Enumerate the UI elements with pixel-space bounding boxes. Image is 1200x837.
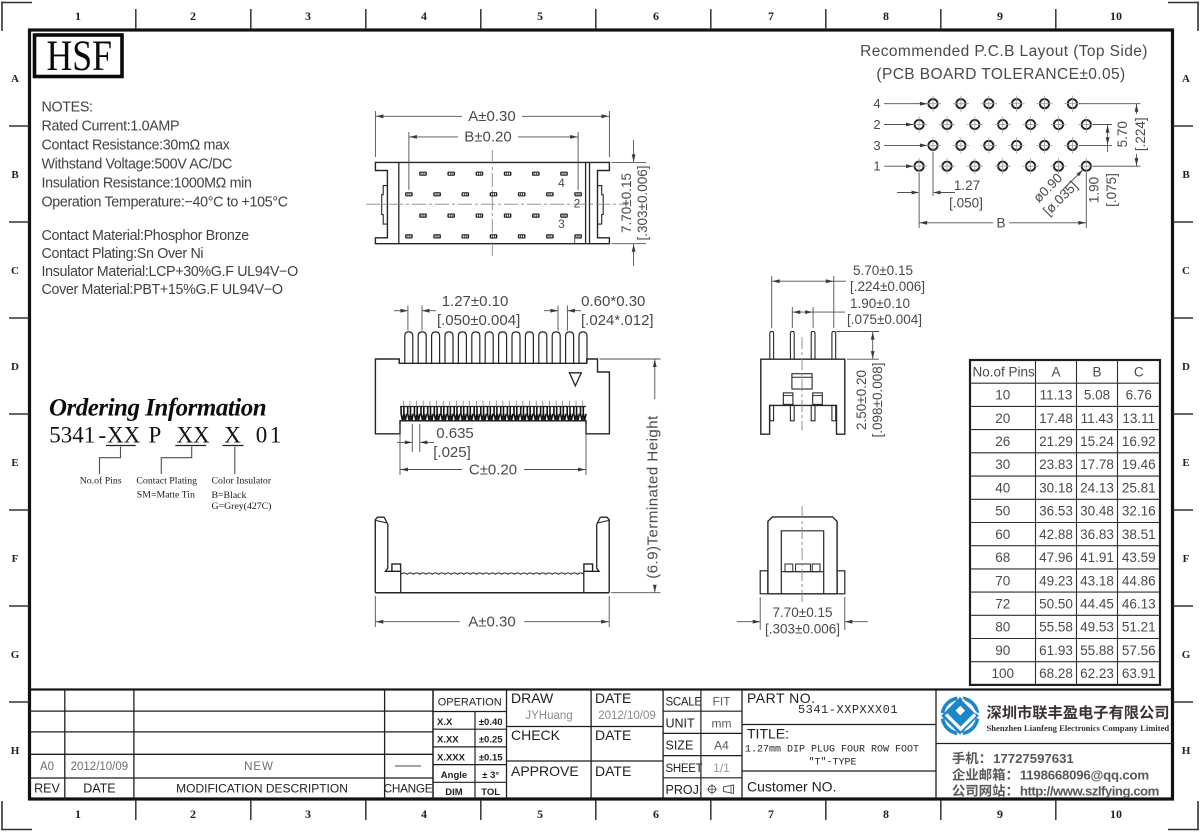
svg-text:62.23: 62.23 <box>1080 666 1114 681</box>
svg-text:10: 10 <box>995 388 1010 403</box>
svg-text:30.48: 30.48 <box>1080 504 1114 519</box>
svg-text:44.86: 44.86 <box>1122 573 1156 588</box>
svg-text:13.11: 13.11 <box>1122 411 1155 426</box>
svg-text:A: A <box>1182 73 1190 85</box>
svg-text:PROJ.: PROJ. <box>666 783 703 797</box>
svg-text:[.224]: [.224] <box>1133 117 1148 151</box>
svg-text:X.X: X.X <box>437 717 453 728</box>
svg-text:51.21: 51.21 <box>1122 620 1156 635</box>
svg-text:36.83: 36.83 <box>1080 527 1114 542</box>
svg-text:63.91: 63.91 <box>1122 666 1156 681</box>
svg-text:6: 6 <box>653 807 659 821</box>
svg-text:43.18: 43.18 <box>1080 573 1114 588</box>
svg-text:17.48: 17.48 <box>1039 411 1073 426</box>
svg-text:DIM: DIM <box>445 787 463 798</box>
svg-text:[.024*.012]: [.024*.012] <box>581 312 654 329</box>
svg-text:6.76: 6.76 <box>1126 388 1152 403</box>
svg-text:B: B <box>1092 364 1101 379</box>
svg-text:1.27: 1.27 <box>954 178 980 193</box>
svg-text:1198668096@qq.com: 1198668096@qq.com <box>1020 768 1149 783</box>
svg-text:REV: REV <box>34 782 60 796</box>
svg-text:1: 1 <box>75 9 81 23</box>
svg-text:0.635: 0.635 <box>436 425 474 442</box>
svg-text:H: H <box>1182 745 1191 757</box>
svg-text:G: G <box>1182 649 1191 661</box>
svg-text:32.16: 32.16 <box>1122 504 1156 519</box>
svg-text:3: 3 <box>305 9 311 23</box>
svg-text:(6.9)Terminated Height: (6.9)Terminated Height <box>645 415 662 579</box>
svg-text:4: 4 <box>421 9 427 23</box>
svg-text:9: 9 <box>997 807 1003 821</box>
svg-text:5.70: 5.70 <box>1115 121 1130 147</box>
svg-text:Cover Material:PBT+15%G.F UL94: Cover Material:PBT+15%G.F UL94V−O <box>42 282 283 298</box>
svg-text:3: 3 <box>305 807 311 821</box>
svg-text:72: 72 <box>995 597 1010 612</box>
svg-text:55.88: 55.88 <box>1080 643 1114 658</box>
svg-text:21.29: 21.29 <box>1039 434 1073 449</box>
svg-text:[.075±0.004]: [.075±0.004] <box>847 312 922 327</box>
svg-text:30.18: 30.18 <box>1039 481 1073 496</box>
svg-text:B: B <box>11 169 19 181</box>
svg-text:4: 4 <box>558 176 565 190</box>
svg-text:G: G <box>11 649 20 661</box>
svg-text:± 3°: ± 3° <box>482 770 499 781</box>
svg-text:7: 7 <box>768 9 774 23</box>
svg-text:26: 26 <box>995 434 1010 449</box>
svg-text:19.46: 19.46 <box>1122 457 1156 472</box>
svg-text:17.78: 17.78 <box>1080 457 1114 472</box>
svg-text:SHEET: SHEET <box>666 763 703 775</box>
svg-text:10: 10 <box>1110 807 1122 821</box>
svg-text:XX: XX <box>177 423 211 448</box>
svg-text:1: 1 <box>873 159 880 174</box>
svg-text:±0.15: ±0.15 <box>479 752 503 763</box>
svg-text:±0.25: ±0.25 <box>479 735 503 746</box>
svg-text:DATE: DATE <box>595 690 631 706</box>
svg-text:Insulation Resistance:1000MΩ m: Insulation Resistance:1000MΩ min <box>42 176 252 192</box>
svg-text:A±0.30: A±0.30 <box>468 614 515 631</box>
svg-text:1.27mm DIP PLUG FOUR ROW FOOT: 1.27mm DIP PLUG FOUR ROW FOOT <box>745 745 919 756</box>
svg-text:5341-XXPXXX01: 5341-XXPXXX01 <box>798 703 898 717</box>
svg-text:47.96: 47.96 <box>1039 550 1073 565</box>
svg-text:3: 3 <box>558 217 565 231</box>
svg-text:38.51: 38.51 <box>1122 527 1156 542</box>
svg-text:D: D <box>11 361 19 373</box>
svg-text:JYHuang: JYHuang <box>525 710 572 722</box>
svg-text:5.08: 5.08 <box>1084 388 1110 403</box>
svg-text:C±0.20: C±0.20 <box>469 461 517 478</box>
svg-text:[.050±0.004]: [.050±0.004] <box>437 312 520 329</box>
svg-text:C: C <box>1134 364 1144 379</box>
svg-text:11.43: 11.43 <box>1081 411 1114 426</box>
svg-text:Contact Plating: Contact Plating <box>136 475 197 486</box>
svg-text:-: - <box>99 423 107 448</box>
svg-text:A: A <box>1051 364 1060 379</box>
svg-text:2012/10/09: 2012/10/09 <box>598 710 656 722</box>
svg-text:5: 5 <box>537 807 543 821</box>
svg-text:36.53: 36.53 <box>1039 504 1073 519</box>
svg-text:2: 2 <box>190 807 196 821</box>
svg-text:CHANGE: CHANGE <box>384 782 433 796</box>
svg-text:Shenzhen Lianfeng Electronics: Shenzhen Lianfeng Electronics Company Li… <box>987 723 1170 733</box>
svg-text:mm: mm <box>712 717 732 731</box>
svg-text:1/1: 1/1 <box>713 761 730 775</box>
svg-text:X.XXX: X.XXX <box>437 752 466 763</box>
svg-text:0: 0 <box>256 423 267 448</box>
svg-text:100: 100 <box>992 666 1015 681</box>
svg-text:1.90±0.10: 1.90±0.10 <box>850 296 910 311</box>
svg-text:DRAW: DRAW <box>511 690 554 706</box>
svg-text:G=Grey(427C): G=Grey(427C) <box>212 501 272 512</box>
svg-text:44.45: 44.45 <box>1080 597 1114 612</box>
svg-text:X: X <box>224 423 241 448</box>
svg-text:Rated Current:1.0AMP: Rated Current:1.0AMP <box>42 119 180 135</box>
svg-text:Customer NO.: Customer NO. <box>747 779 836 795</box>
svg-text:Color Insulator: Color Insulator <box>212 475 272 486</box>
svg-text:Contact Resistance:30mΩ max: Contact Resistance:30mΩ max <box>42 138 230 154</box>
svg-text:Recommended P.C.B Layout (Top: Recommended P.C.B Layout (Top Side) <box>860 43 1148 60</box>
svg-text:6: 6 <box>653 9 659 23</box>
svg-text:A±0.30: A±0.30 <box>468 108 515 125</box>
svg-text:TOL: TOL <box>481 787 500 798</box>
svg-text:15.24: 15.24 <box>1080 434 1114 449</box>
svg-text:2: 2 <box>873 117 880 132</box>
svg-text:No.of Pins: No.of Pins <box>80 475 122 486</box>
svg-text:E: E <box>1182 457 1189 469</box>
svg-text:B: B <box>996 215 1005 230</box>
svg-text:49.23: 49.23 <box>1039 573 1073 588</box>
svg-text:SIZE: SIZE <box>666 739 694 753</box>
svg-text:[.075]: [.075] <box>1104 173 1119 207</box>
svg-text:80: 80 <box>995 620 1010 635</box>
svg-text:APPROVE: APPROVE <box>511 763 579 779</box>
svg-text:UNIT: UNIT <box>666 717 696 731</box>
svg-text:2.50±0.20: 2.50±0.20 <box>854 370 869 430</box>
svg-text:[.224±0.006]: [.224±0.006] <box>850 279 925 294</box>
svg-text:50: 50 <box>995 504 1010 519</box>
svg-text:Insulator Material:LCP+30%G.F: Insulator Material:LCP+30%G.F UL94V−O <box>42 264 299 280</box>
svg-text:CHECK: CHECK <box>511 727 561 743</box>
svg-text:1.27±0.10: 1.27±0.10 <box>442 293 509 310</box>
svg-text:(PCB BOARD TOLERANCE±0.05): (PCB BOARD TOLERANCE±0.05) <box>876 66 1125 83</box>
svg-text:0.60*0.30: 0.60*0.30 <box>581 293 645 310</box>
svg-text:68.28: 68.28 <box>1039 666 1073 681</box>
svg-text:TITLE:: TITLE: <box>747 726 789 742</box>
svg-text:20: 20 <box>995 411 1010 426</box>
svg-text:D: D <box>1182 361 1190 373</box>
svg-text:2: 2 <box>574 197 581 211</box>
svg-text:A: A <box>11 73 19 85</box>
svg-text:SM=Matte Tin: SM=Matte Tin <box>137 489 195 500</box>
svg-text:23.83: 23.83 <box>1039 457 1073 472</box>
svg-text:[.303±0.006]: [.303±0.006] <box>635 166 650 241</box>
svg-text:"T"-TYPE: "T"-TYPE <box>808 757 856 769</box>
svg-text:NOTES:: NOTES: <box>42 100 93 116</box>
svg-text:C: C <box>1182 265 1190 277</box>
svg-text:Contact Plating:Sn Over Ni: Contact Plating:Sn Over Ni <box>42 246 204 262</box>
svg-text:C: C <box>11 265 19 277</box>
svg-text:43.59: 43.59 <box>1122 550 1156 565</box>
svg-text:46.13: 46.13 <box>1122 597 1156 612</box>
svg-text:57.56: 57.56 <box>1122 643 1156 658</box>
svg-text:4: 4 <box>873 96 880 111</box>
svg-text:H: H <box>11 745 20 757</box>
svg-text:P: P <box>149 423 162 448</box>
svg-text:8: 8 <box>883 9 889 23</box>
svg-text:FIT: FIT <box>713 695 732 709</box>
svg-text:25.81: 25.81 <box>1122 481 1156 496</box>
svg-text:XX: XX <box>107 423 141 448</box>
svg-text:17727597631: 17727597631 <box>993 751 1074 766</box>
svg-text:60: 60 <box>995 527 1010 542</box>
svg-text:7.70±0.15: 7.70±0.15 <box>773 605 833 620</box>
svg-text:±0.40: ±0.40 <box>479 717 503 728</box>
svg-text:1: 1 <box>270 423 282 448</box>
svg-text:Angle: Angle <box>441 770 467 781</box>
svg-text:4: 4 <box>421 807 427 821</box>
svg-text:1.90: 1.90 <box>1087 177 1102 203</box>
svg-text:9: 9 <box>997 9 1003 23</box>
svg-text:http://www.szlfying.com: http://www.szlfying.com <box>1020 784 1159 799</box>
svg-text:No.of Pins: No.of Pins <box>973 364 1036 379</box>
svg-text:8: 8 <box>883 807 889 821</box>
svg-text:X.XX: X.XX <box>437 735 459 746</box>
svg-text:11.13: 11.13 <box>1040 388 1073 403</box>
svg-text:B=Black: B=Black <box>212 490 247 501</box>
svg-text:A4: A4 <box>714 739 729 753</box>
svg-text:30: 30 <box>995 457 1010 472</box>
svg-text:Withstand Voltage:500V AC/DC: Withstand Voltage:500V AC/DC <box>42 157 232 173</box>
svg-text:[.303±0.006]: [.303±0.006] <box>765 622 840 637</box>
svg-text:OPERATION: OPERATION <box>438 697 502 709</box>
svg-text:F: F <box>1183 553 1190 565</box>
svg-text:50.50: 50.50 <box>1039 597 1073 612</box>
svg-text:5.70±0.15: 5.70±0.15 <box>853 263 913 278</box>
svg-text:Contact Material:Phosphor Bron: Contact Material:Phosphor Bronze <box>42 228 250 244</box>
svg-text:10: 10 <box>1110 9 1122 23</box>
svg-text:90: 90 <box>995 643 1010 658</box>
svg-text:[.025]: [.025] <box>433 444 471 461</box>
svg-text:5: 5 <box>537 9 543 23</box>
svg-text:2: 2 <box>190 9 196 23</box>
svg-text:24.13: 24.13 <box>1080 481 1114 496</box>
svg-text:61.93: 61.93 <box>1039 643 1073 658</box>
svg-text:2012/10/09: 2012/10/09 <box>71 761 129 773</box>
svg-text:16.92: 16.92 <box>1122 434 1156 449</box>
svg-text:5341: 5341 <box>49 423 95 448</box>
svg-text:49.53: 49.53 <box>1080 620 1114 635</box>
svg-text:42.88: 42.88 <box>1039 527 1073 542</box>
svg-text:7.70±0.15: 7.70±0.15 <box>619 173 634 233</box>
svg-text:Operation Temperature:−40°C to: Operation Temperature:−40°C to +105°C <box>42 195 288 211</box>
svg-text:1: 1 <box>75 807 81 821</box>
svg-text:NEW: NEW <box>244 761 274 773</box>
svg-text:7: 7 <box>768 807 774 821</box>
svg-text:Ordering Information: Ordering Information <box>49 395 266 422</box>
svg-text:70: 70 <box>995 573 1010 588</box>
svg-text:3: 3 <box>873 138 880 153</box>
svg-text:DATE: DATE <box>595 727 631 743</box>
svg-text:E: E <box>11 457 18 469</box>
svg-text:HSF: HSF <box>47 33 113 80</box>
svg-text:55.58: 55.58 <box>1039 620 1073 635</box>
svg-text:68: 68 <box>995 550 1010 565</box>
svg-text:A0: A0 <box>40 761 54 773</box>
svg-text:41.91: 41.91 <box>1080 550 1114 565</box>
svg-text:B±0.20: B±0.20 <box>464 129 511 146</box>
svg-text:F: F <box>12 553 19 565</box>
svg-text:DATE: DATE <box>595 763 631 779</box>
svg-text:[.098±0.008]: [.098±0.008] <box>870 363 885 438</box>
svg-text:40: 40 <box>995 481 1010 496</box>
svg-text:B: B <box>1182 169 1190 181</box>
svg-text:MODIFICATION DESCRIPTION: MODIFICATION DESCRIPTION <box>176 782 348 796</box>
svg-text:DATE: DATE <box>83 782 115 796</box>
svg-text:SCALE: SCALE <box>666 697 703 709</box>
svg-text:[.050]: [.050] <box>949 196 983 211</box>
